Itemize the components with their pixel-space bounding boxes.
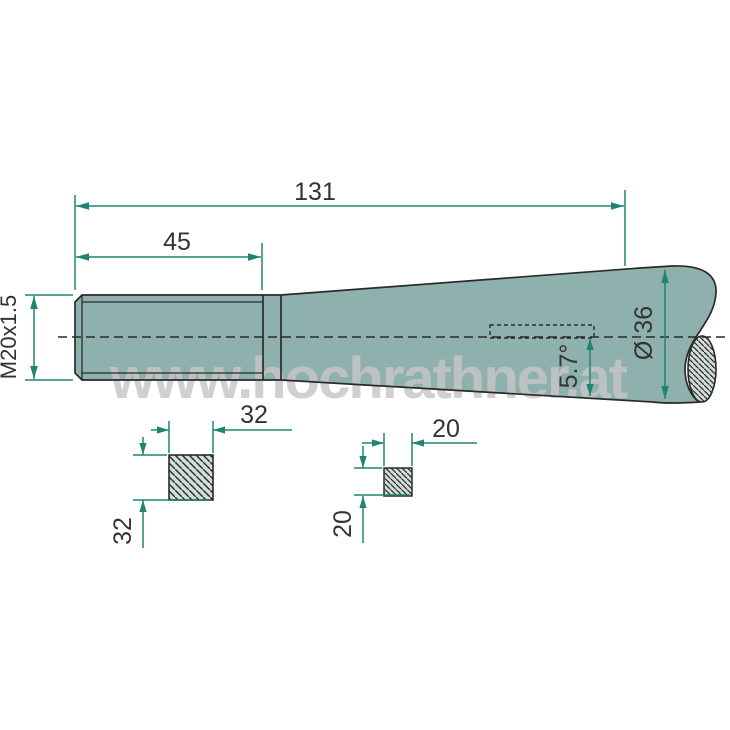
cross-section-large <box>169 455 213 500</box>
label-thread-designation: M20x1.5 <box>0 295 21 379</box>
label-large-section-width: 32 <box>240 401 268 429</box>
drawing-canvas: www.hochrathner.at <box>0 0 730 730</box>
label-thread-length: 45 <box>163 228 191 256</box>
label-small-section-width: 20 <box>432 415 460 443</box>
watermark-text: www.hochrathner.at <box>109 346 628 411</box>
technical-drawing-tine: www.hochrathner.at <box>0 0 730 730</box>
label-small-section-height: 20 <box>329 510 357 538</box>
break-section-ellipse <box>688 336 716 402</box>
cross-section-small <box>384 468 412 496</box>
label-overall-length: 131 <box>294 178 336 206</box>
label-large-section-height: 32 <box>109 517 137 545</box>
label-taper-angle: 5.7° <box>555 344 583 389</box>
label-diameter: Ø 36 <box>630 306 658 360</box>
